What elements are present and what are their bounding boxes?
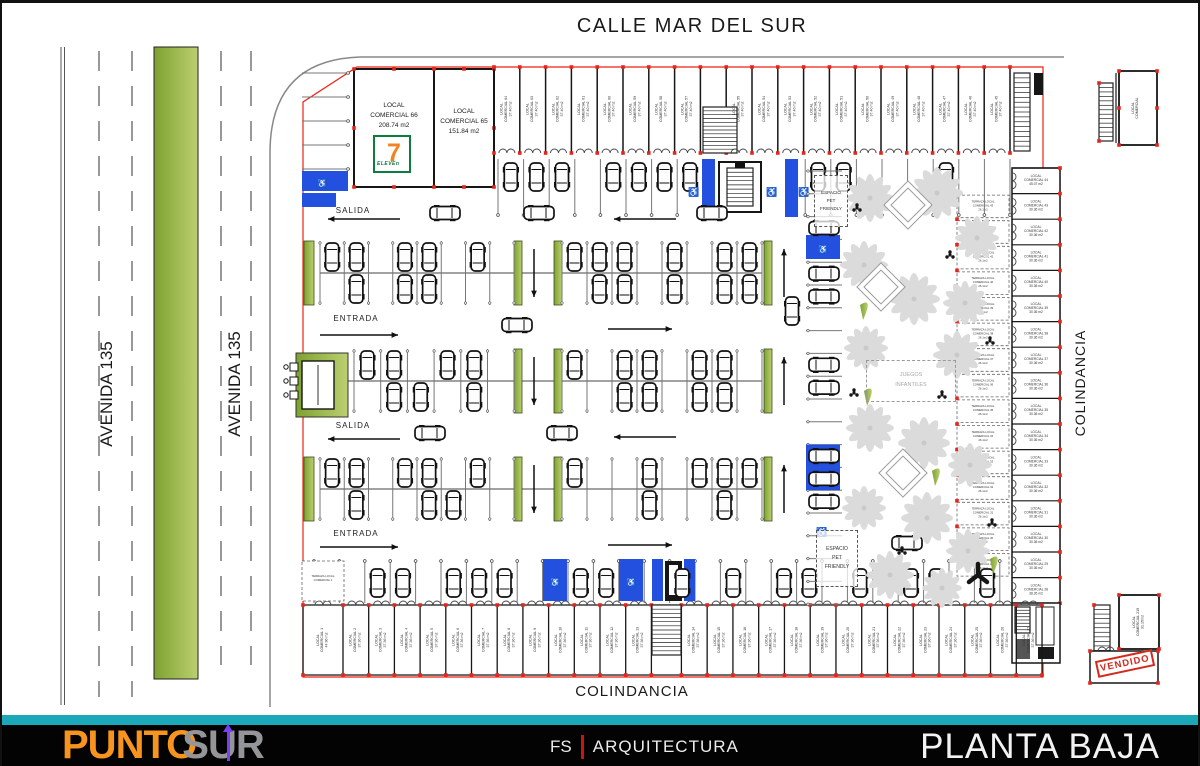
pet-line1: ESPACIO	[821, 189, 841, 197]
red-marker	[853, 65, 857, 69]
unit-label: COMERCIAL 17	[769, 627, 773, 653]
red-marker	[570, 65, 574, 69]
unit-label: LOCAL	[500, 103, 504, 115]
red-marker	[1156, 649, 1160, 653]
door-arc	[680, 149, 696, 153]
unit-label: LOCAL	[374, 634, 378, 646]
unit-label: COMERCIAL 1	[314, 578, 333, 582]
door-arc	[576, 149, 592, 153]
red-marker	[783, 603, 787, 607]
unit-label: 37.40 m2	[767, 102, 771, 117]
unit-label: COMERCIAL 9	[533, 628, 537, 652]
car-icon	[809, 357, 839, 373]
door-arc	[783, 149, 799, 153]
direction-arrow	[392, 544, 398, 550]
car-icon	[605, 163, 621, 191]
red-marker	[989, 603, 993, 607]
pet-friendly-area-bottom: ESPACIO PET FRIENDLY	[816, 530, 858, 587]
red-marker	[432, 185, 436, 189]
car-icon	[809, 471, 839, 487]
red-marker	[860, 603, 864, 607]
unit-label: COMERCIAL 61	[582, 96, 586, 122]
unit-label: COMERCIAL 22	[898, 627, 902, 653]
red-marker	[301, 673, 305, 677]
car-icon	[784, 297, 800, 325]
unit-label: 37.36 m2	[979, 633, 983, 648]
direction-arrow	[666, 542, 672, 548]
bench-icon	[945, 250, 954, 258]
unit-label: 30.36 m2	[1029, 284, 1043, 288]
car-icon	[430, 205, 460, 221]
car-icon	[370, 569, 386, 597]
red-marker	[518, 65, 522, 69]
red-marker	[1008, 151, 1012, 155]
unit-label: 37.40 m2	[792, 102, 796, 117]
car-icon	[421, 243, 437, 271]
car-icon	[674, 569, 690, 597]
palm-tree-icon	[842, 486, 886, 530]
unit-label: LOCAL	[784, 103, 788, 115]
red-marker	[1058, 217, 1062, 221]
red-marker	[731, 603, 735, 607]
door-arc	[757, 149, 773, 153]
red-marker	[731, 673, 735, 677]
car-icon	[717, 243, 733, 271]
unit-label: 37.36 m2	[799, 633, 803, 648]
car-icon	[717, 275, 733, 303]
red-marker	[1058, 294, 1062, 298]
red-marker	[828, 151, 832, 155]
entrada-label-2: ENTRADA	[324, 529, 388, 538]
car-icon	[421, 459, 437, 487]
unit-label: LOCAL	[938, 103, 942, 115]
red-marker	[1058, 576, 1062, 580]
crosswalk	[652, 559, 663, 601]
red-marker	[783, 673, 787, 677]
local-65-line1: LOCAL	[434, 107, 494, 117]
car-icon	[725, 569, 741, 597]
red-marker	[570, 151, 574, 155]
red-marker	[1040, 673, 1044, 677]
unit-label: 37.36 m2	[1005, 633, 1009, 648]
red-marker	[1092, 603, 1096, 607]
unit-label: COMERCIAL 23	[923, 627, 927, 653]
unit-label: LOCAL	[426, 634, 430, 646]
direction-arrow	[328, 436, 334, 442]
car-icon	[567, 243, 583, 271]
red-marker	[1155, 106, 1159, 110]
direction-arrow	[614, 434, 620, 440]
location-pin-icon	[227, 731, 230, 761]
unit-label: LOCAL	[739, 634, 743, 646]
unit-label: COMERCIAL 24	[949, 627, 953, 653]
unit-label: LOCAL	[316, 634, 320, 646]
red-marker	[1088, 681, 1092, 685]
unit-label: LOCAL	[603, 103, 607, 115]
unit-label: 37.36 m2	[537, 633, 541, 648]
car-icon	[742, 459, 758, 487]
unit-label: 30.36 m2	[1029, 438, 1043, 442]
unit-label: COMERCIAL 45	[994, 96, 998, 122]
door-arc	[989, 149, 1005, 153]
red-marker	[1058, 243, 1062, 247]
unit-label: 37.36 m2	[953, 633, 957, 648]
red-marker	[367, 603, 371, 607]
car-icon	[421, 275, 437, 303]
red-marker	[301, 603, 305, 607]
red-marker	[1040, 603, 1044, 607]
unit-label: COMERCIAL 57	[685, 96, 689, 122]
unit-label: 30.36 m2	[1029, 515, 1043, 519]
colindancia-label-bottom: COLINDANCIA	[532, 683, 732, 700]
red-marker	[937, 673, 941, 677]
direction-arrow	[781, 465, 787, 471]
red-marker	[699, 151, 703, 155]
red-marker	[776, 65, 780, 69]
red-marker	[650, 673, 654, 677]
car-icon	[717, 351, 733, 379]
red-marker	[462, 185, 466, 189]
red-marker	[886, 603, 890, 607]
red-marker	[905, 65, 909, 69]
red-marker	[1117, 143, 1121, 147]
red-marker	[1058, 269, 1062, 273]
car-icon	[466, 351, 482, 379]
unit-label: 37.40 m2	[999, 102, 1003, 117]
red-marker	[1117, 106, 1121, 110]
red-marker	[470, 603, 474, 607]
unit-label: LOCAL	[764, 634, 768, 646]
unit-label: COMERCIAL 51	[840, 96, 844, 122]
unit-label: 30.36 m2	[1029, 412, 1043, 416]
car-icon	[567, 351, 583, 379]
unit-label: COMERCIAL 13	[636, 627, 640, 653]
red-marker	[955, 269, 959, 273]
car-icon	[348, 275, 364, 303]
unit-label: 37.40 m2	[638, 102, 642, 117]
unit-label: LOCAL	[551, 103, 555, 115]
unit-label: LOCAL	[919, 634, 923, 646]
bottom-locales-row: LOCALCOMERCIAL 144.96 m2LOCALCOMERCIAL 2…	[301, 601, 1044, 677]
door-arc	[551, 149, 567, 153]
unit-label: 37.40 m2	[663, 102, 667, 117]
planting-island	[514, 349, 522, 413]
red-marker	[595, 65, 599, 69]
red-divider	[581, 735, 584, 759]
door-arc	[809, 149, 825, 153]
red-marker	[1097, 139, 1101, 143]
unit-label: 30.36 m2	[1029, 566, 1043, 570]
car-icon	[324, 243, 340, 271]
unit-label: COMERCIAL 219	[1136, 608, 1140, 636]
pet-line1: ESPACIO	[826, 545, 848, 554]
red-marker	[963, 603, 967, 607]
unit-label: COMERCIAL 60	[607, 96, 611, 122]
unit-label: 37.36 m2	[460, 633, 464, 648]
playground-area: JUEGOS INFANTILES	[866, 360, 956, 402]
unit-label: COMERCIAL 25	[975, 627, 979, 653]
car-icon	[809, 288, 839, 304]
red-marker	[834, 673, 838, 677]
red-marker	[547, 603, 551, 607]
handicap-icon: ♿	[688, 186, 699, 197]
car-icon	[470, 459, 486, 487]
unit-label: LOCAL	[680, 103, 684, 115]
street-label-avenida-135-a: AVENIDA 135	[97, 329, 117, 459]
car-icon	[617, 275, 633, 303]
unit-label: COMERCIAL 48	[917, 96, 921, 122]
red-marker	[521, 603, 525, 607]
plan-drawing: LOCALCOMERCIAL 6437.40 m2LOCALCOMERCIAL …	[2, 3, 1198, 715]
planting-wedge	[860, 303, 868, 320]
red-marker	[905, 151, 909, 155]
unit-label: COMERCIAL 64	[504, 96, 508, 122]
car-icon	[717, 459, 733, 487]
red-marker	[470, 673, 474, 677]
unit-label: 37.36 m2	[928, 633, 932, 648]
crosswalk	[302, 193, 336, 207]
red-marker	[598, 673, 602, 677]
red-marker	[492, 151, 496, 155]
unit-label: 37.36 m2	[486, 633, 490, 648]
red-marker	[492, 185, 496, 189]
red-marker	[680, 673, 684, 677]
unit-label: 37.36 m2	[747, 633, 751, 648]
red-marker	[808, 673, 812, 677]
unit-label: COMERCIAL 47	[943, 96, 947, 122]
car-icon	[470, 243, 486, 271]
unit-label: LOCAL	[970, 634, 974, 646]
planting-wedge	[932, 469, 940, 486]
red-marker	[982, 151, 986, 155]
local-66-line2: COMERCIAL 66	[354, 111, 434, 121]
direction-arrow	[666, 326, 672, 332]
car-icon	[642, 383, 658, 411]
street-label-calle-mar-del-sur: CALLE MAR DEL SUR	[522, 15, 862, 38]
red-marker	[1088, 649, 1092, 653]
unit-label: 37.40 m2	[509, 102, 513, 117]
unit-label: COMERCIAL 50	[865, 96, 869, 122]
unit-label: COMERCIAL	[1135, 97, 1139, 118]
planting-island	[764, 457, 772, 521]
fs-initials: FS	[550, 737, 572, 757]
unit-label: 37.36 m2	[850, 633, 854, 648]
seven-eleven-word: ELEVEn	[377, 161, 399, 167]
handicap-icon: ♿	[626, 577, 636, 587]
unit-label: COMERCIAL 8	[507, 628, 511, 652]
red-marker	[418, 673, 422, 677]
red-marker	[1058, 499, 1062, 503]
unit-label: COMERCIAL 14	[691, 627, 695, 653]
sheet-title: PLANTA BAJA	[920, 725, 1160, 766]
car-icon	[503, 163, 519, 191]
unit-label: COMERCIAL 53	[788, 96, 792, 122]
pet-line2: PET	[832, 554, 842, 563]
palm-tree-icon	[846, 404, 894, 452]
car-icon	[524, 205, 554, 221]
red-marker	[393, 603, 397, 607]
unit-label: LOCAL	[893, 634, 897, 646]
red-marker	[957, 65, 961, 69]
car-icon	[397, 459, 413, 487]
unit-label: 37.36 m2	[512, 633, 516, 648]
unit-label: LOCAL	[349, 634, 353, 646]
red-marker	[699, 65, 703, 69]
red-marker	[955, 525, 959, 529]
red-marker	[931, 65, 935, 69]
unit-label: 37.40 m2	[896, 102, 900, 117]
unit-label: 37.36 m2	[722, 633, 726, 648]
footer: PUNTOSUR FS ARQUITECTURA PLANTA BAJA	[2, 725, 1200, 766]
direction-arrow	[531, 399, 537, 405]
car-icon	[421, 491, 437, 519]
unit-label: 37.40 m2	[612, 102, 616, 117]
unit-label: 37.40 m2	[921, 102, 925, 117]
local-66-area: 208.74 m2	[354, 121, 434, 131]
red-marker	[352, 67, 356, 71]
unit-label: COMERCIAL 21	[872, 627, 876, 653]
red-marker	[957, 151, 961, 155]
unit-label: COMERCIAL 20	[846, 627, 850, 653]
car-icon	[395, 569, 411, 597]
unit-label: 26.1m2	[978, 361, 988, 365]
red-marker	[1058, 192, 1062, 196]
red-marker	[418, 603, 422, 607]
unit-label: COMERCIAL 18	[795, 627, 799, 653]
unit-label: 30.36 m2	[1029, 310, 1043, 314]
car-icon	[348, 243, 364, 271]
red-marker	[750, 151, 754, 155]
direction-arrow	[614, 216, 620, 222]
car-icon	[592, 275, 608, 303]
planting-island	[554, 457, 562, 521]
unit-label: COMERCIAL 4	[404, 628, 408, 652]
unit-label: LOCAL	[580, 634, 584, 646]
car-icon	[386, 351, 402, 379]
planting-island	[764, 349, 772, 413]
car-icon	[348, 459, 364, 487]
door-arc	[628, 149, 644, 153]
unit-label: COMERCIAL 7	[482, 628, 486, 652]
unit-label: LOCAL	[1132, 616, 1136, 628]
unit-label: LOCAL	[867, 634, 871, 646]
unit-label: 38.26 m2	[1029, 591, 1043, 595]
direction-arrow	[392, 332, 398, 338]
car-icon	[397, 243, 413, 271]
stairs	[727, 168, 753, 206]
floor-plan-sheet: LOCALCOMERCIAL 6437.40 m2LOCALCOMERCIAL …	[0, 0, 1200, 766]
car-icon	[567, 459, 583, 487]
unit-label: LOCAL	[964, 103, 968, 115]
unit-label: 37.36 m2	[902, 633, 906, 648]
unit-label: LOCAL	[400, 634, 404, 646]
red-marker	[367, 673, 371, 677]
red-marker	[757, 673, 761, 677]
red-marker	[392, 185, 396, 189]
unit-label: LOCAL	[842, 634, 846, 646]
pet-friendly-area-top: ESPACIO PET FRIENDLY	[814, 175, 848, 227]
planting-island	[514, 457, 522, 521]
red-marker	[621, 151, 625, 155]
unit-label: LOCAL	[1022, 634, 1026, 646]
red-marker	[828, 65, 832, 69]
car-icon	[497, 569, 513, 597]
unit-label: 37.40 m2	[560, 102, 564, 117]
red-marker	[341, 673, 345, 677]
car-icon	[324, 459, 340, 487]
car-icon	[742, 243, 758, 271]
red-marker	[886, 673, 890, 677]
unit-label: LOCAL	[526, 103, 530, 115]
car-icon	[386, 383, 402, 411]
unit-label: LOCAL	[631, 634, 635, 646]
unit-label: COMERCIAL 6	[456, 628, 460, 652]
door-arc	[834, 149, 850, 153]
direction-arrow	[531, 507, 537, 513]
unit-label: 45.07 m2	[1029, 182, 1043, 186]
red-marker	[879, 65, 883, 69]
unit-label: LOCAL	[809, 103, 813, 115]
red-marker	[1097, 81, 1101, 85]
red-marker	[432, 67, 436, 71]
unit-label: LOCAL	[687, 634, 691, 646]
door-arc	[886, 149, 902, 153]
logo-punto: PUNTO	[62, 723, 196, 766]
car-icon	[717, 383, 733, 411]
arquitectura-label: ARQUITECTURA	[593, 737, 739, 757]
door-arc	[963, 149, 979, 153]
planting-island	[554, 349, 562, 413]
unit-label: 37.40 m2	[844, 102, 848, 117]
red-marker	[521, 673, 525, 677]
red-marker	[647, 65, 651, 69]
unit-label: 26.1m2	[978, 284, 988, 288]
local-66-label: LOCAL COMERCIAL 66 208.74 m2	[354, 101, 434, 131]
unit-label: 37.36 m2	[1031, 633, 1035, 648]
red-marker	[547, 673, 551, 677]
unit-label: 37.36 m2	[773, 633, 777, 648]
car-icon	[809, 448, 839, 464]
car-icon	[717, 491, 733, 519]
bench-icon	[849, 388, 858, 396]
red-marker	[1058, 397, 1062, 401]
door-arc	[938, 149, 954, 153]
red-marker	[1014, 603, 1018, 607]
red-marker	[462, 67, 466, 71]
unit-label: 26.1m2	[978, 412, 988, 416]
unit-label: COMERCIAL 63	[530, 96, 534, 122]
car-icon	[776, 569, 792, 597]
red-marker	[352, 185, 356, 189]
unit-label: COMERCIAL 19	[820, 627, 824, 653]
door-arc	[912, 149, 928, 153]
door-arc	[654, 149, 670, 153]
red-marker	[624, 673, 628, 677]
unit-label: COMERCIAL 58	[659, 96, 663, 122]
local-65-label: LOCAL COMERCIAL 65 151.84 m2	[434, 107, 494, 137]
red-marker	[982, 65, 986, 69]
salida-label-1: SALIDA	[322, 206, 384, 215]
unit-label: COMERCIAL 62	[556, 96, 560, 122]
car-icon	[439, 351, 455, 379]
unit-label: 26.1m2	[978, 515, 988, 519]
door-arc	[860, 149, 876, 153]
car-icon	[471, 569, 487, 597]
unit-label: COMERCIAL 26	[1001, 627, 1005, 653]
red-marker	[776, 151, 780, 155]
red-marker	[853, 151, 857, 155]
car-icon	[692, 459, 708, 487]
